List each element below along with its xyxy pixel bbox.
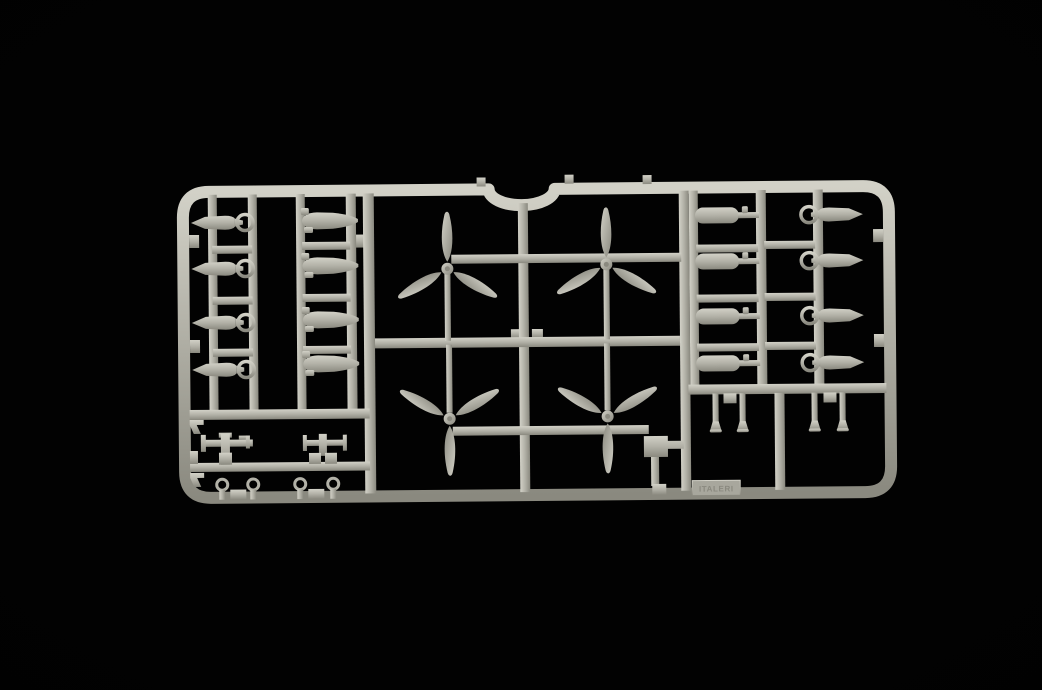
sprue-photo: ITALERI	[0, 0, 1042, 690]
vignette-overlay	[0, 0, 1042, 690]
